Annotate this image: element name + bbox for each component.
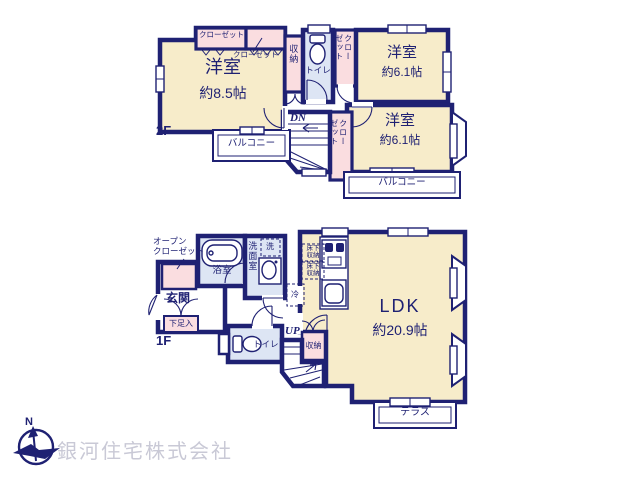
ldk-size: 約20.9帖 (350, 322, 450, 338)
closet-2f-top-right-door (337, 86, 354, 103)
compass-north-label: N (25, 416, 33, 429)
open-closet-label: オープン クローゼット (153, 237, 204, 257)
toilet-2f-label: トイレ (303, 66, 333, 76)
floor1-label: 1F (156, 334, 171, 349)
closet-2f-top-right-label: クローゼット (334, 34, 352, 68)
terrace-label: テラス (376, 407, 454, 419)
bedroom-2f-top-right-size: 約6.1帖 (356, 66, 448, 80)
entrance-label: 玄関 (166, 292, 190, 306)
floorplan-page: クローゼット クローゼット 収納 トイレ クローゼット 洋室 約6.1帖 洋室 … (0, 0, 640, 480)
refrigerator-label: 冷 (291, 290, 299, 299)
stairs-down-label: DN (290, 112, 306, 125)
bedroom-2f-main-name: 洋室 (162, 57, 284, 78)
floor2-label: 2F (156, 124, 171, 139)
closet-2f-a-label: クローゼット (197, 31, 246, 40)
bedroom-2f-bottom-right-size: 約6.1帖 (350, 134, 450, 148)
balcony-2f-right-label: バルコニー (346, 178, 458, 189)
shoe-cabinet-label: 下足入 (165, 319, 197, 328)
bathtub-icon (202, 240, 242, 266)
toilet-1f-label: トイレ (253, 340, 279, 350)
bay-window-2f (450, 112, 466, 166)
bathroom-label: 浴室 (202, 266, 242, 277)
company-name: 銀河住宅株式会社 (57, 441, 233, 464)
toilet-icon-2f (310, 35, 325, 64)
washroom-label: 洗面室 (247, 241, 257, 283)
ldk-name: LDK (350, 296, 450, 317)
compass-north-icon (13, 426, 60, 464)
storage-2f-label: 収納 (288, 44, 298, 72)
bedroom-2f-bottom-right-name: 洋室 (350, 112, 450, 129)
bedroom-2f-main-size: 約8.5帖 (162, 85, 284, 101)
laundry-label: 洗 (266, 242, 274, 251)
open-closet-1f (162, 264, 196, 289)
underfloor-storage-label-2: 床下 収納 (302, 263, 324, 278)
balcony-2f-left-label: バルコニー (214, 139, 289, 150)
underfloor-storage-label-1: 床下 収納 (302, 245, 324, 260)
storage-1f-label: 収納 (303, 341, 324, 350)
toilet-1f-niche (219, 334, 229, 354)
sink-icon (259, 258, 281, 284)
closet-2f-bottom-right-label: クローゼット (329, 119, 347, 153)
closet-2f-b (246, 28, 285, 49)
stairs-up-label: UP (285, 325, 300, 338)
bedroom-2f-top-right-name: 洋室 (356, 44, 448, 61)
